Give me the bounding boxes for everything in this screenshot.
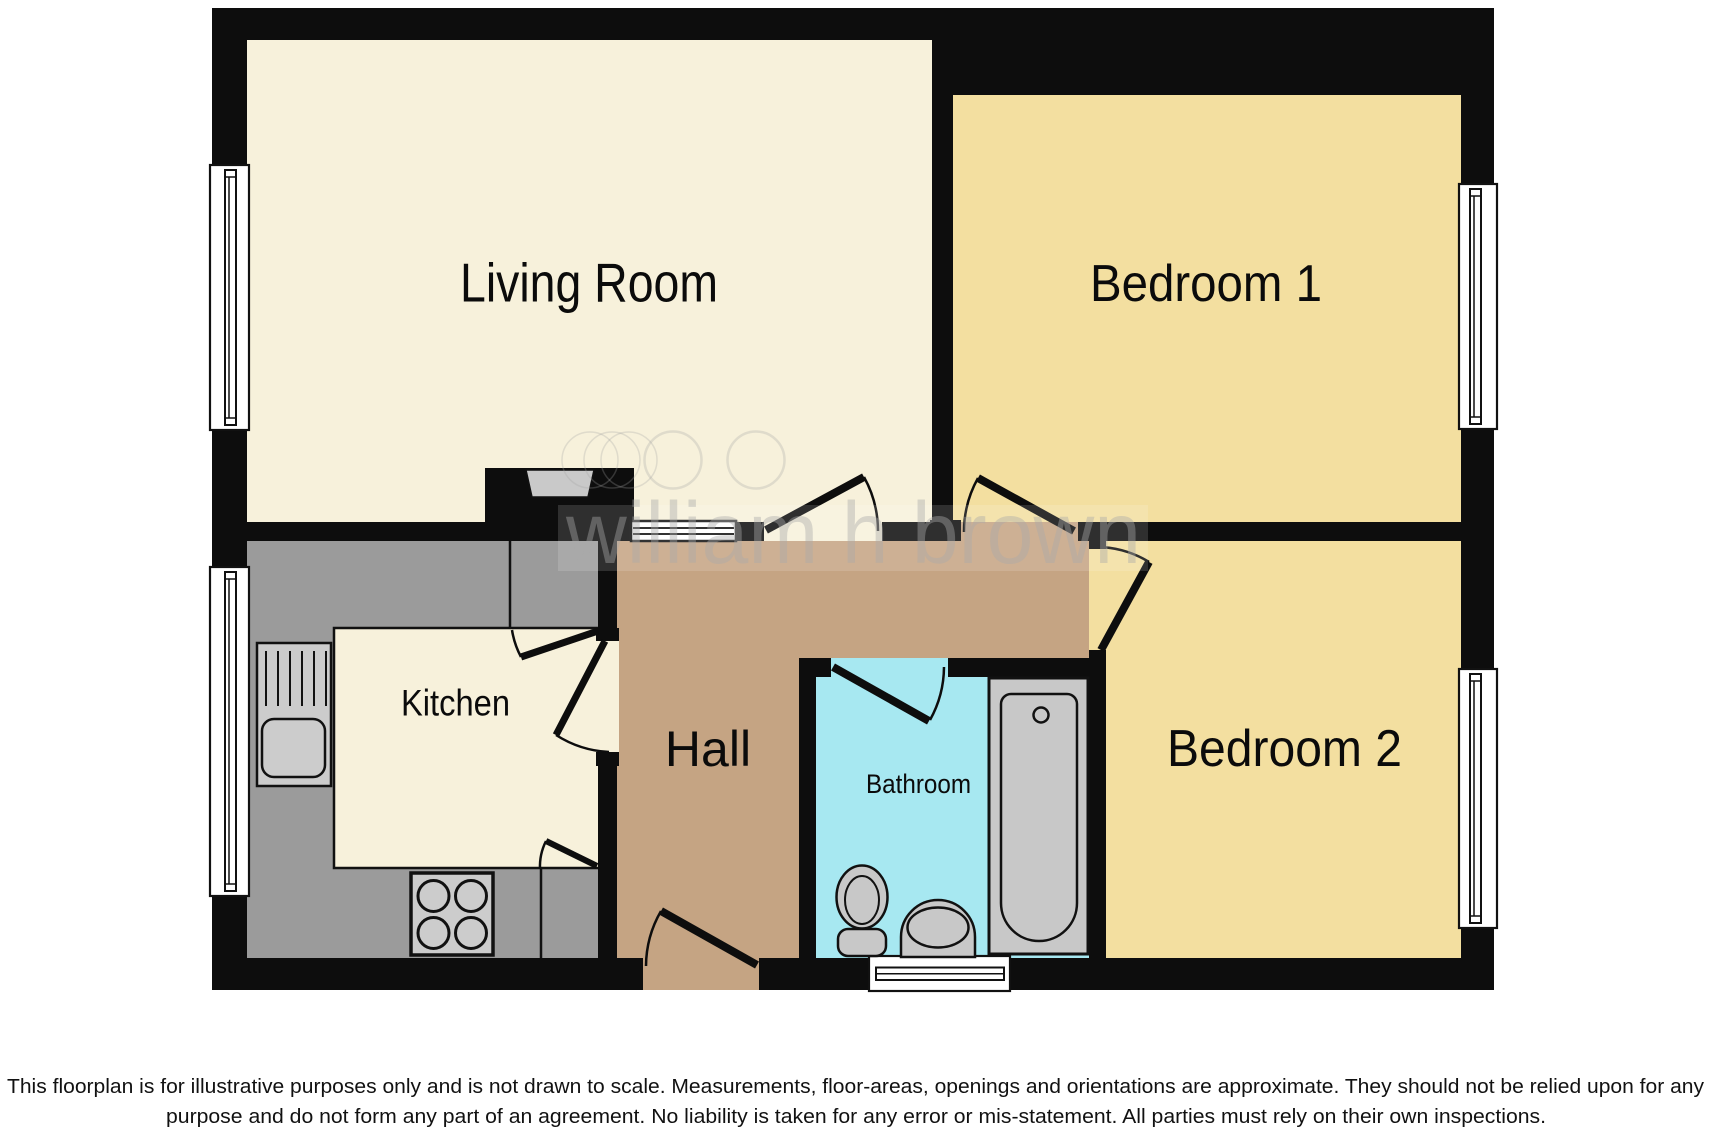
svg-text:Kitchen: Kitchen bbox=[401, 683, 510, 724]
svg-text:purpose and do not form any pa: purpose and do not form any part of an a… bbox=[166, 1106, 1546, 1128]
svg-text:This floorplan is for illustra: This floorplan is for illustrative purpo… bbox=[7, 1076, 1704, 1098]
svg-text:Bedroom 2: Bedroom 2 bbox=[1167, 720, 1402, 778]
svg-text:Bedroom 1: Bedroom 1 bbox=[1090, 255, 1322, 313]
svg-text:william h brown: william h brown bbox=[565, 485, 1141, 582]
svg-text:Bathroom: Bathroom bbox=[866, 769, 971, 799]
svg-text:Living Room: Living Room bbox=[460, 252, 718, 314]
svg-text:Hall: Hall bbox=[665, 721, 751, 777]
